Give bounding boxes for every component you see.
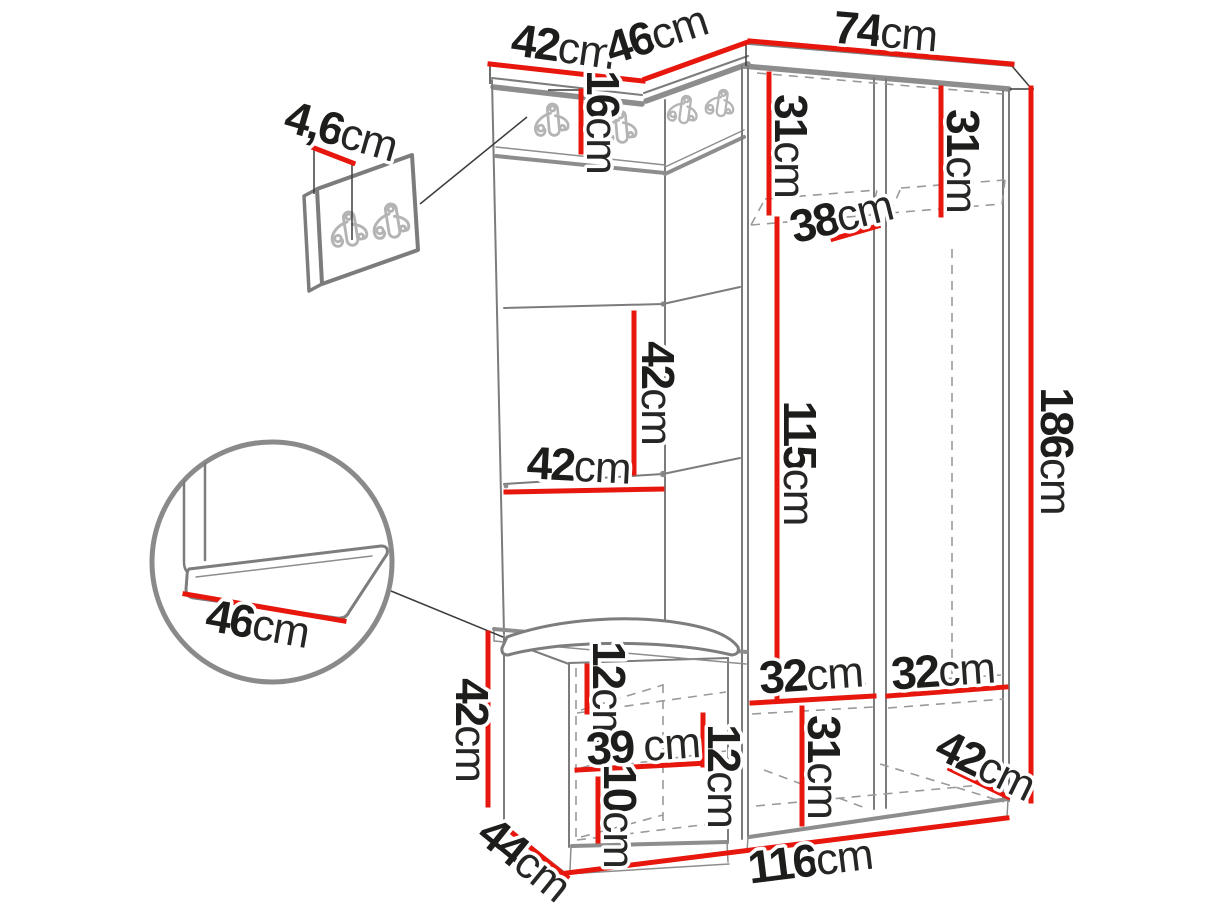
- dim-label-bench-height: 42cm: [446, 678, 498, 782]
- furniture-dimension-diagram: 42cm 46cm 74cm 16cm 4,6cm 31cm 31cm 38cm…: [0, 0, 1214, 911]
- dim-label-bench-middle-clearance: 12cm: [698, 724, 750, 828]
- dim-label-total-height: 186cm: [1031, 387, 1083, 514]
- dim-label-panel-square-width: 42cm: [526, 436, 632, 493]
- dim-label-wardrobe-top-width: 74cm: [831, 1, 939, 62]
- dim-label-corner-top-width: 46cm: [599, 0, 714, 75]
- dim-label-right-top-shelf-height: 31cm: [937, 109, 989, 213]
- dim-label-panel-square-height: 42cm: [632, 341, 684, 445]
- dim-label-right-bottom-shelf-width: 32cm: [889, 640, 996, 699]
- diagram-svg: 42cm 46cm 74cm 16cm 4,6cm 31cm 31cm 38cm…: [0, 0, 1214, 911]
- dim-label-hanging-space-height: 115cm: [774, 401, 826, 526]
- dim-label-bench-bottom-clearance: 10cm: [594, 764, 646, 868]
- dim-label-bottom-compartment-height: 31cm: [798, 715, 850, 819]
- dim-label-hook-strip-height: 16cm: [577, 70, 629, 174]
- wall-hook-panel-detail: [304, 155, 418, 291]
- dim-label-left-bottom-shelf-width: 32cm: [757, 644, 864, 703]
- dim-label-left-top-shelf-height: 31cm: [765, 94, 817, 198]
